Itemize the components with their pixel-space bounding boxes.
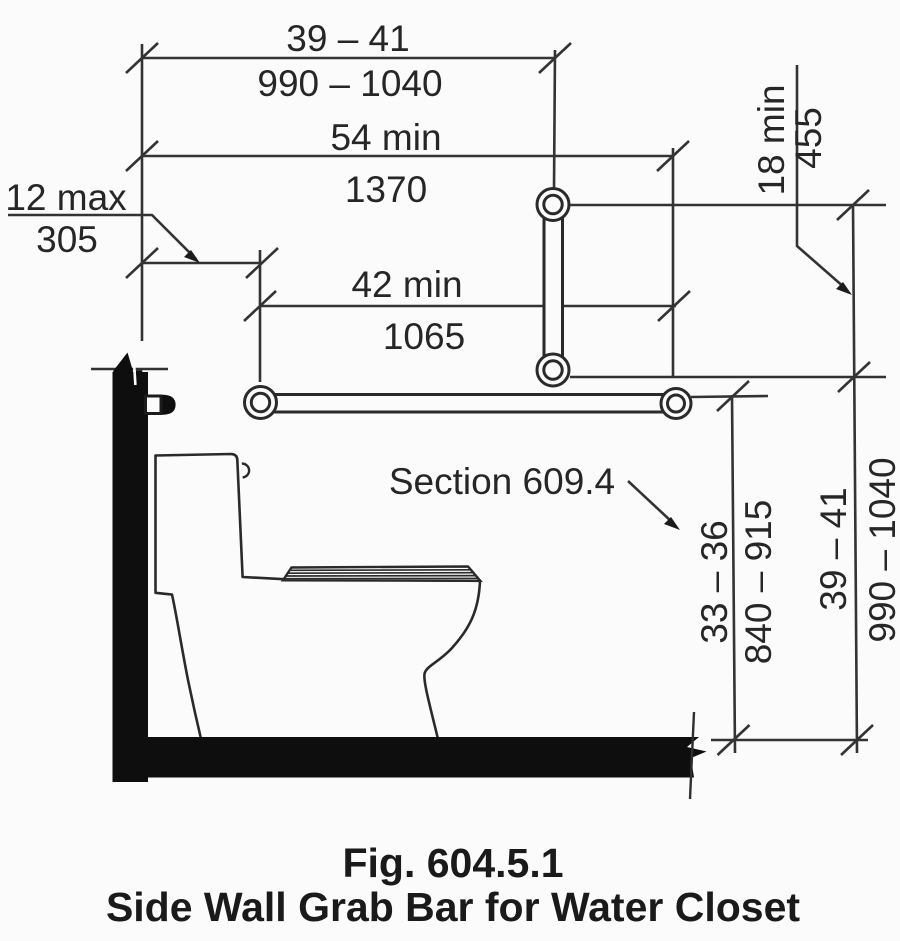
svg-text:840 – 915: 840 – 915: [738, 500, 779, 665]
svg-text:Fig. 604.5.1: Fig. 604.5.1: [342, 840, 563, 886]
svg-text:305: 305: [36, 219, 98, 260]
svg-text:455: 455: [788, 107, 829, 169]
svg-text:39 – 41: 39 – 41: [813, 487, 854, 610]
svg-text:Side Wall Grab Bar for Water C: Side Wall Grab Bar for Water Closet: [106, 884, 800, 930]
svg-text:1370: 1370: [345, 169, 427, 210]
svg-text:990 – 1040: 990 – 1040: [257, 63, 442, 104]
svg-text:Section 609.4: Section 609.4: [389, 461, 615, 502]
svg-text:1065: 1065: [383, 316, 465, 357]
svg-text:54 min: 54 min: [330, 117, 441, 158]
svg-text:39 – 41: 39 – 41: [286, 18, 409, 59]
svg-text:12 max: 12 max: [5, 177, 127, 218]
svg-text:18 min: 18 min: [751, 84, 792, 195]
svg-text:990 – 1040: 990 – 1040: [862, 457, 900, 642]
svg-text:42 min: 42 min: [351, 264, 462, 305]
svg-text:33 – 36: 33 – 36: [694, 520, 735, 643]
